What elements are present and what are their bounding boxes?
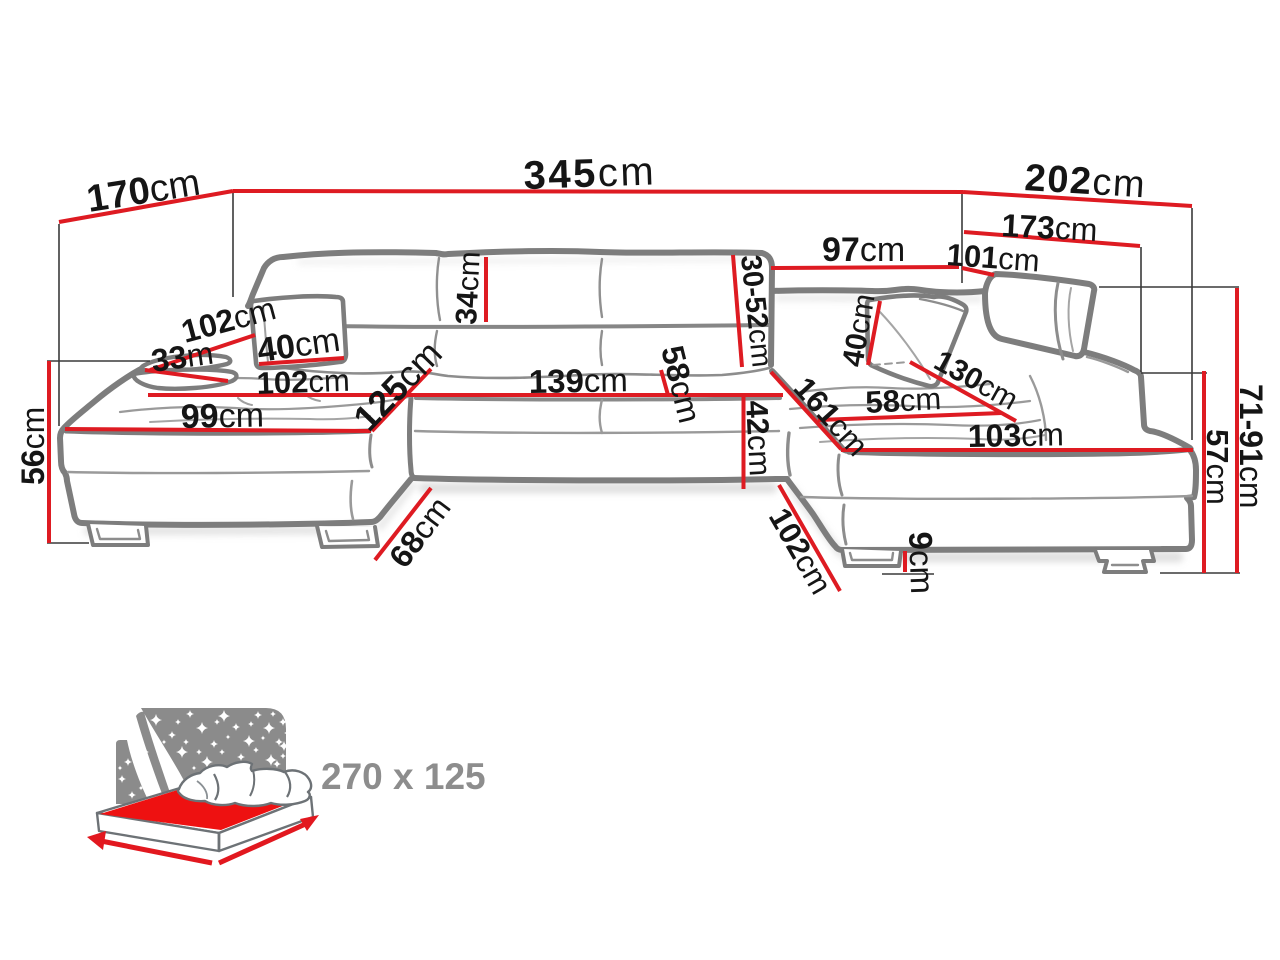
svg-text:125cm: 125cm	[345, 332, 450, 438]
svg-text:34cm: 34cm	[450, 250, 487, 325]
svg-text:170cm: 170cm	[84, 162, 203, 221]
svg-text:57cm: 57cm	[1200, 429, 1235, 505]
svg-text:103cm: 103cm	[967, 416, 1064, 454]
svg-text:139cm: 139cm	[528, 361, 628, 400]
svg-text:97cm: 97cm	[822, 231, 905, 269]
svg-text:58cm: 58cm	[865, 381, 943, 420]
svg-text:102cm: 102cm	[256, 363, 350, 401]
svg-text:202cm: 202cm	[1023, 157, 1147, 206]
svg-text:58cm: 58cm	[654, 342, 708, 427]
svg-text:102cm: 102cm	[762, 502, 839, 600]
svg-text:71-91cm: 71-91cm	[1233, 384, 1269, 509]
svg-text:101cm: 101cm	[946, 237, 1041, 278]
svg-text:42cm: 42cm	[739, 400, 778, 478]
svg-text:345cm: 345cm	[523, 149, 657, 198]
svg-text:9cm: 9cm	[902, 531, 941, 595]
svg-text:99cm: 99cm	[180, 397, 264, 436]
svg-text:56cm: 56cm	[15, 407, 51, 485]
svg-text:270 x 125: 270 x 125	[321, 756, 486, 797]
